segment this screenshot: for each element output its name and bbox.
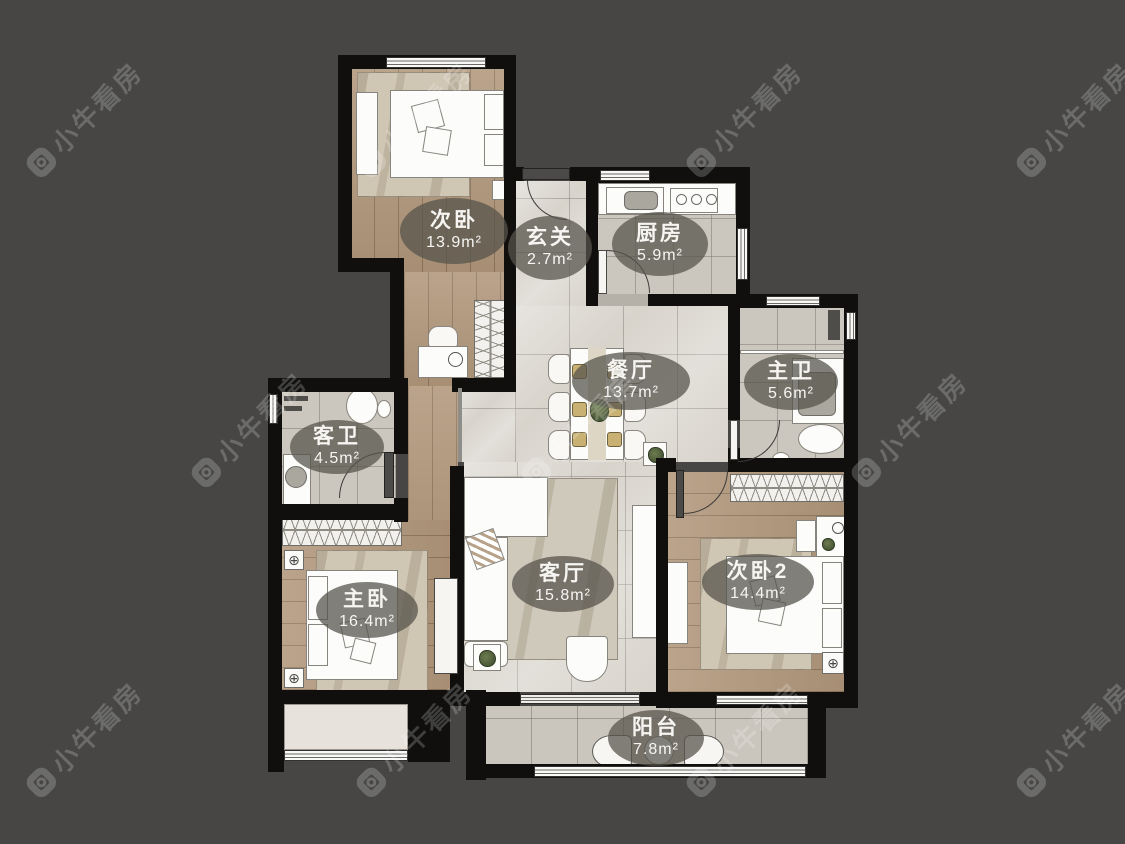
window	[600, 170, 650, 181]
room-area: 15.8m²	[535, 586, 591, 605]
place-setting	[572, 432, 587, 447]
watermark: 小牛看房	[1009, 673, 1125, 805]
masterbed-door-leaf	[434, 578, 458, 674]
wall	[844, 294, 858, 708]
burner-icon	[691, 194, 702, 205]
watermark: 小牛看房	[679, 53, 811, 185]
dining-chair	[548, 354, 570, 384]
toilet-flush	[377, 400, 391, 418]
shower-fixture-icon	[828, 310, 840, 340]
watermark-text: 小牛看房	[702, 53, 810, 161]
watermark: 小牛看房	[1009, 53, 1125, 185]
room-name: 客卫	[313, 425, 361, 449]
burner-icon	[676, 194, 687, 205]
wall	[390, 258, 404, 388]
brand-logo-icon	[188, 454, 225, 491]
bay-window	[284, 750, 408, 761]
room-area: 5.9m²	[637, 246, 683, 265]
watermark-text: 小牛看房	[42, 673, 150, 781]
armchair	[566, 636, 608, 682]
kitchen-sink-basin	[624, 191, 658, 210]
room-label-kitchen: 厨房 5.9m²	[612, 212, 708, 276]
room-name: 厨房	[636, 222, 684, 246]
balcony-window	[534, 766, 806, 777]
desk-plant	[822, 538, 835, 551]
watermark: 小牛看房	[19, 673, 151, 805]
brand-logo-icon	[23, 144, 60, 181]
watermark-text: 小牛看房	[867, 363, 975, 471]
bay-window-sill	[284, 704, 408, 750]
masterbath-door-leaf	[730, 420, 738, 460]
pillow	[484, 134, 504, 166]
bedroom3-wardrobe	[730, 474, 844, 502]
kitchen-door-leaf	[598, 250, 607, 294]
room-area: 2.7m²	[527, 250, 573, 269]
room-area: 13.9m²	[426, 233, 482, 252]
light-fixture-icon: ⊕	[822, 652, 844, 674]
watermark-text: 小牛看房	[42, 53, 150, 161]
brand-logo-icon	[23, 764, 60, 801]
window	[269, 394, 278, 424]
room-area: 14.4m²	[730, 584, 786, 603]
watermark-text: 小牛看房	[1032, 53, 1125, 161]
pillow	[822, 608, 842, 648]
room-area: 13.7m²	[603, 383, 659, 402]
watermark: 小牛看房	[844, 363, 976, 495]
sliding-door-track	[520, 694, 640, 704]
wall	[656, 458, 668, 706]
desk-chair	[428, 326, 458, 348]
towel-bar-icon	[284, 406, 302, 411]
wall	[338, 258, 394, 272]
pillow	[308, 624, 328, 666]
guestbath-door-leaf	[384, 452, 394, 498]
room-label-masterbath: 主卫 5.6m²	[744, 354, 838, 410]
room-area: 16.4m²	[339, 612, 395, 631]
glass-partition	[458, 388, 462, 462]
watermark-text: 小牛看房	[1032, 673, 1125, 781]
desk-lamp-icon	[448, 352, 463, 367]
bedroom3-door-leaf	[676, 470, 684, 518]
guestbath-sink	[285, 466, 307, 488]
room-name: 主卧	[343, 588, 391, 612]
room-area: 5.6m²	[768, 384, 814, 403]
wall	[504, 55, 516, 181]
room-name: 餐厅	[607, 359, 655, 383]
room-label-guestbath: 客卫 4.5m²	[290, 420, 384, 474]
room-area: 7.8m²	[633, 740, 679, 759]
sofa-chaise	[464, 477, 548, 537]
wall	[268, 504, 408, 520]
nightstand	[796, 520, 816, 552]
window	[846, 312, 856, 340]
place-setting	[607, 432, 622, 447]
window	[716, 695, 808, 705]
room-label-living: 客厅 15.8m²	[512, 556, 614, 612]
wall	[394, 378, 408, 454]
pillow	[822, 562, 842, 604]
wall	[408, 704, 450, 762]
wall	[268, 690, 464, 704]
room-label-balcony: 阳台 7.8m²	[608, 710, 704, 766]
kitchen-threshold	[598, 294, 648, 306]
wardrobe	[474, 300, 507, 378]
light-fixture-icon: ⊕	[284, 550, 304, 570]
room-label-entry: 玄关 2.7m²	[508, 216, 592, 280]
wall	[728, 308, 740, 420]
brand-logo-icon	[1013, 144, 1050, 181]
room-label-dining: 餐厅 13.7m²	[572, 352, 690, 410]
side-table-plant	[479, 650, 496, 667]
burner-icon	[706, 194, 717, 205]
desk-lamp-icon	[832, 522, 844, 534]
window	[386, 57, 486, 68]
towel-bar-icon	[284, 396, 308, 401]
room-name: 次卧2	[727, 560, 790, 584]
room-name: 阳台	[632, 716, 680, 740]
brand-logo-icon	[1013, 764, 1050, 801]
window	[766, 296, 820, 306]
toilet	[346, 388, 378, 424]
tv-console	[632, 505, 658, 638]
room-name: 主卫	[767, 360, 815, 384]
place-setting	[572, 402, 587, 417]
wall	[268, 378, 408, 392]
wall	[338, 55, 352, 272]
dining-floor-extension	[462, 386, 516, 462]
wall	[640, 692, 666, 706]
bedroom3-cabinet	[666, 562, 688, 644]
room-name: 玄关	[526, 226, 574, 250]
dining-chair	[548, 392, 570, 422]
room-area: 4.5m²	[314, 449, 360, 468]
light-fixture-icon: ⊕	[284, 668, 304, 688]
wall	[586, 294, 598, 306]
room-name: 次卧	[430, 209, 478, 233]
room-label-masterbed: 主卧 16.4m²	[316, 582, 418, 638]
watermark: 小牛看房	[19, 53, 151, 185]
brand-logo-icon	[353, 764, 390, 801]
wall	[268, 378, 282, 704]
room-label-bedroom3: 次卧2 14.4m²	[702, 554, 814, 610]
toilet	[798, 424, 844, 454]
room-name: 客厅	[539, 562, 587, 586]
room-label-bedroom2: 次卧 13.9m²	[400, 198, 508, 264]
entry-door-leaf	[522, 168, 570, 180]
window	[737, 228, 748, 280]
wall	[504, 181, 516, 388]
throw-pillow	[422, 126, 452, 156]
wall	[268, 704, 284, 772]
pillow	[484, 94, 504, 130]
dining-chair	[548, 430, 570, 460]
bedroom2-cabinet	[356, 92, 378, 175]
floor-plan: ⊕ ⊕ ⊕ 次卧 13.9m² 玄关 2.7m² 厨房 5.9m² 餐厅 13.…	[0, 0, 1125, 844]
